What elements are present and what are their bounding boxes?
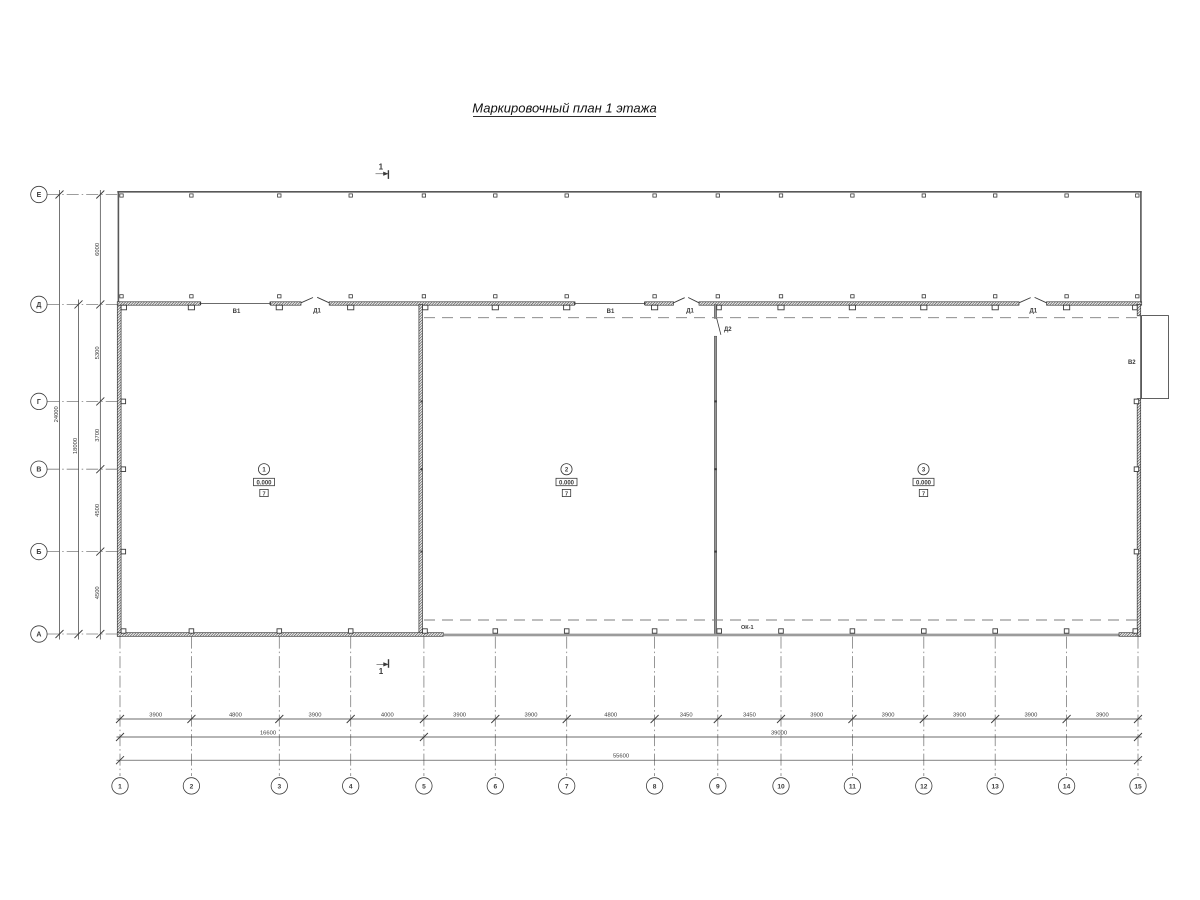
svg-text:16600: 16600 [260, 730, 276, 736]
svg-text:3900: 3900 [1096, 713, 1109, 719]
svg-text:3450: 3450 [680, 713, 693, 719]
svg-text:3450: 3450 [743, 713, 756, 719]
svg-text:9: 9 [716, 783, 720, 790]
svg-text:3900: 3900 [882, 713, 895, 719]
svg-text:4000: 4000 [381, 713, 394, 719]
svg-text:Г: Г [37, 399, 41, 406]
svg-text:В: В [36, 467, 41, 474]
svg-text:3900: 3900 [525, 713, 538, 719]
svg-text:1: 1 [379, 162, 384, 171]
svg-text:7: 7 [262, 491, 265, 497]
svg-text:5300: 5300 [95, 346, 101, 359]
svg-text:4500: 4500 [95, 586, 101, 599]
svg-text:10: 10 [777, 783, 785, 790]
svg-text:8: 8 [653, 783, 657, 790]
svg-text:3900: 3900 [953, 713, 966, 719]
svg-text:7: 7 [565, 491, 568, 497]
svg-text:Б: Б [36, 549, 41, 556]
svg-text:А: А [36, 631, 41, 638]
svg-text:7: 7 [922, 491, 925, 497]
svg-text:3900: 3900 [149, 713, 162, 719]
svg-text:В1: В1 [233, 309, 241, 315]
svg-text:Д1: Д1 [313, 308, 321, 314]
svg-text:3900: 3900 [453, 713, 466, 719]
svg-text:6: 6 [493, 783, 497, 790]
svg-text:39000: 39000 [771, 730, 787, 736]
svg-text:11: 11 [849, 783, 856, 790]
svg-text:3700: 3700 [95, 429, 101, 442]
svg-text:Д: Д [36, 302, 41, 309]
svg-text:12: 12 [920, 783, 928, 790]
svg-text:3: 3 [277, 783, 281, 790]
svg-text:5: 5 [422, 783, 426, 790]
svg-text:15: 15 [1134, 783, 1142, 790]
svg-text:0.000: 0.000 [256, 480, 272, 486]
svg-text:В2: В2 [1128, 360, 1136, 366]
svg-text:3900: 3900 [309, 713, 322, 719]
svg-text:18000: 18000 [73, 438, 79, 454]
svg-text:1: 1 [379, 667, 384, 676]
svg-text:3900: 3900 [1024, 713, 1037, 719]
svg-text:Д1: Д1 [686, 308, 694, 314]
svg-text:4: 4 [349, 783, 353, 790]
svg-text:14: 14 [1063, 783, 1071, 790]
svg-text:4500: 4500 [95, 504, 101, 517]
svg-text:0.000: 0.000 [916, 480, 932, 486]
svg-text:7: 7 [565, 783, 569, 790]
svg-text:55600: 55600 [613, 754, 629, 760]
svg-text:Маркировочный план 1 этажа: Маркировочный план 1 этажа [472, 101, 657, 116]
svg-text:Д2: Д2 [724, 327, 732, 333]
svg-text:4800: 4800 [229, 713, 242, 719]
svg-text:ОК-1: ОК-1 [741, 625, 754, 631]
svg-text:24000: 24000 [54, 406, 60, 422]
svg-text:Д1: Д1 [1029, 308, 1037, 314]
svg-text:0.000: 0.000 [559, 480, 575, 486]
svg-text:1: 1 [118, 783, 122, 790]
svg-text:6000: 6000 [95, 243, 101, 256]
svg-text:Е: Е [37, 192, 42, 199]
svg-text:2: 2 [190, 783, 194, 790]
svg-text:4800: 4800 [604, 713, 617, 719]
svg-text:13: 13 [992, 783, 1000, 790]
svg-text:3900: 3900 [810, 713, 823, 719]
svg-text:В1: В1 [607, 309, 615, 315]
